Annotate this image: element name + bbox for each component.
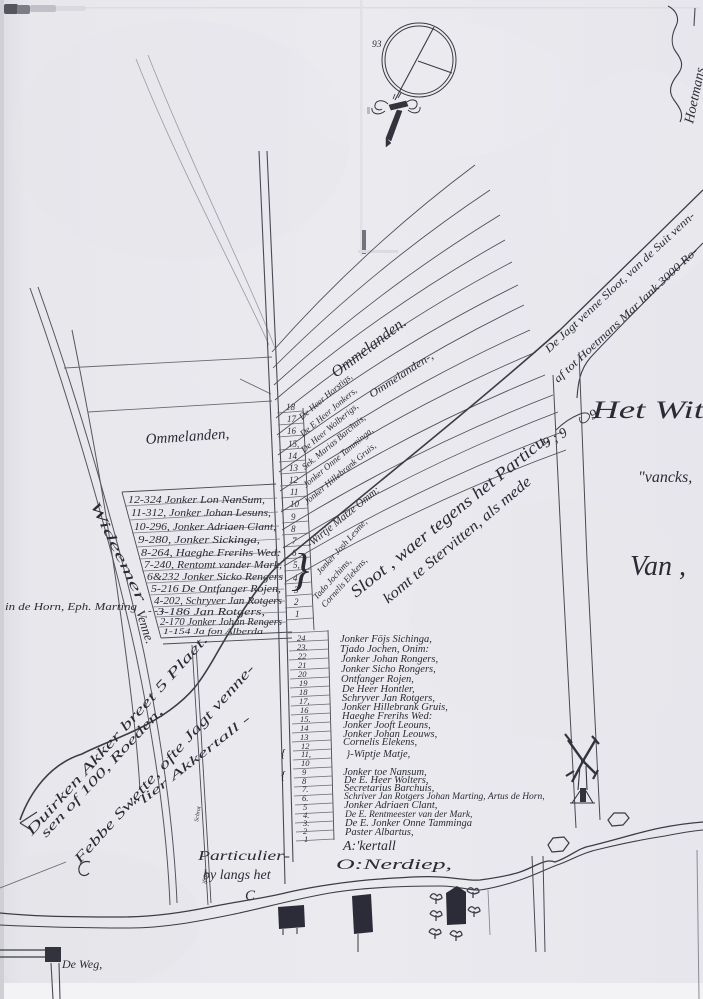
svg-text:1: 1 xyxy=(295,609,300,619)
svg-text:{: { xyxy=(281,746,286,760)
svg-text:10-296, Jonker Adriaen Clant,: 10-296, Jonker Adriaen Clant, xyxy=(134,522,276,533)
svg-text:in de Horn, Eph. Marting: in de Horn, Eph. Marting xyxy=(5,602,137,613)
svg-text:11: 11 xyxy=(290,487,298,497)
svg-text:Cornelis Elekens,: Cornelis Elekens, xyxy=(343,737,417,748)
svg-text:1-154 Ja fon Alberda: 1-154 Ja fon Alberda xyxy=(163,627,263,636)
svg-text:Van ,: Van , xyxy=(630,551,686,582)
svg-text:C: C xyxy=(245,888,256,904)
svg-text:1: 1 xyxy=(304,834,308,844)
svg-text:O:Nerdiep,: O:Nerdiep, xyxy=(336,857,452,873)
svg-text:- - -: - - - xyxy=(148,605,165,617)
svg-text:by langs het: by langs het xyxy=(203,868,272,883)
svg-text:17: 17 xyxy=(287,414,297,424)
svg-text:9: 9 xyxy=(291,512,296,522)
svg-text:8-264, Haeghe Frerihs Wed:: 8-264, Haeghe Frerihs Wed: xyxy=(141,548,281,559)
svg-text:4-202, Schryver Jan Rotgers: 4-202, Schryver Jan Rotgers xyxy=(154,596,282,607)
svg-text:93: 93 xyxy=(372,40,382,50)
svg-text:"vancks,: "vancks, xyxy=(638,469,692,486)
svg-text:{: { xyxy=(281,768,286,782)
svg-text:11-312, Jonker Johan Lesuns,: 11-312, Jonker Johan Lesuns, xyxy=(131,508,271,519)
svg-text:8: 8 xyxy=(291,524,296,534)
svg-text:6&232 Jonker Sicko Rengers: 6&232 Jonker Sicko Rengers xyxy=(147,572,283,583)
svg-text:14: 14 xyxy=(288,451,298,461)
svg-text:Het Wit: Het Wit xyxy=(591,397,703,424)
svg-text:12-324 Jonker Lon NanSum,: 12-324 Jonker Lon NanSum, xyxy=(128,495,265,506)
svg-text:7-240, Rentomt vander Mark,: 7-240, Rentomt vander Mark, xyxy=(144,560,282,571)
svg-text:De Weg,: De Weg, xyxy=(61,957,102,971)
svg-text:}-Wiptje Matje,: }-Wiptje Matje, xyxy=(346,749,410,760)
svg-text:Particulier-: Particulier- xyxy=(197,849,291,864)
svg-text:9-280, Jonker Sickinga,: 9-280, Jonker Sickinga, xyxy=(138,535,260,546)
svg-text:16: 16 xyxy=(287,426,297,436)
svg-text:2: 2 xyxy=(294,597,299,607)
svg-text:10: 10 xyxy=(290,499,300,509)
svg-text:5-216 De Ontfanger Rojen,: 5-216 De Ontfanger Rojen, xyxy=(151,584,281,595)
svg-text:Paster Albartus,: Paster Albartus, xyxy=(344,827,414,838)
svg-text:A:'kertall: A:'kertall xyxy=(342,839,396,854)
